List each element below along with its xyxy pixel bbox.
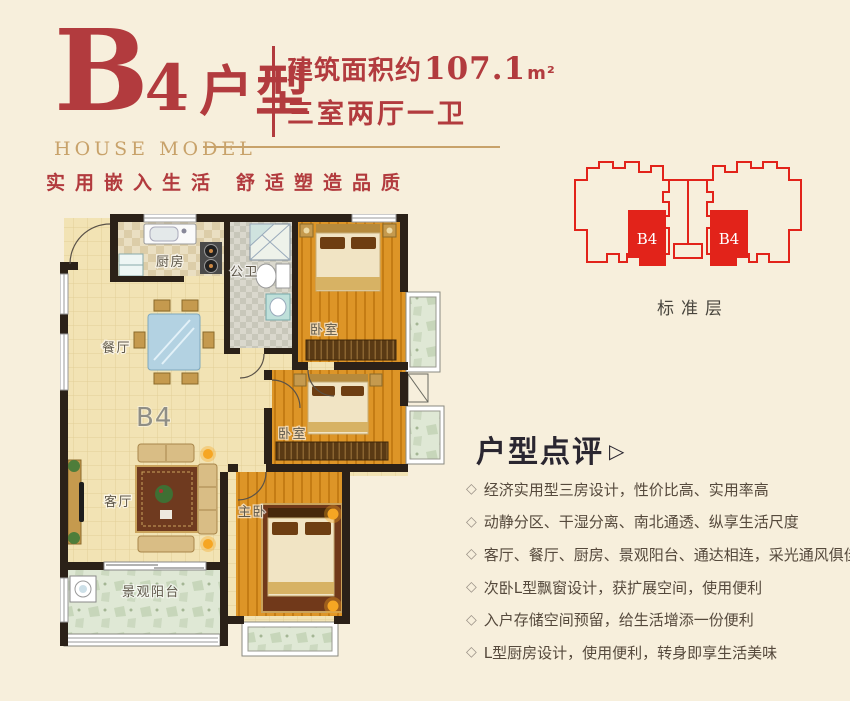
- floor-plan: 厨房 公卫 卧室 餐厅 卧室 客厅 主卧 景观阳台 B4: [60, 214, 463, 666]
- spec-block: 建筑面积约107.1m² 三室两厅一卫: [287, 50, 556, 131]
- duct-shaft: [408, 374, 428, 402]
- bay-window-bedroom2: [406, 406, 444, 464]
- review-item-text: 客厅、餐厅、厨房、景观阳台、通达相连，采光通风俱佳: [484, 544, 850, 565]
- review-item-text: L型厨房设计，使用便利，转身即享生活美味: [484, 642, 777, 663]
- review-heading-text: 户型点评: [476, 427, 604, 471]
- area-unit: m²: [527, 63, 556, 84]
- subtitle-english: HOUSE MODEL: [54, 138, 256, 160]
- title-number: 4: [145, 51, 190, 126]
- review-item-text: 动静分区、干湿分离、南北通透、纵享生活尺度: [484, 511, 799, 532]
- review-list: ◇经济实用型三房设计，性价比高、实用率高 ◇动静分区、干湿分离、南北通透、纵享生…: [466, 473, 850, 669]
- bedroom1-wardrobe: [306, 340, 396, 360]
- area-line: 建筑面积约107.1m²: [287, 50, 556, 87]
- balcony-window-band: [64, 634, 220, 646]
- site-diagram-drawing: B4 B4: [573, 158, 813, 288]
- floor-plan-drawing: 厨房 公卫 卧室 餐厅 卧室 客厅 主卧 景观阳台 B4: [60, 214, 463, 666]
- room-label-bedroom1: 卧室: [310, 322, 339, 338]
- washing-machine: [70, 576, 96, 602]
- slogan-left: 实用嵌入生活: [46, 172, 220, 194]
- review-item: ◇经济实用型三房设计，性价比高、实用率高: [466, 473, 850, 506]
- room-label-balcony: 景观阳台: [122, 585, 180, 600]
- bedroom2-wardrobe: [276, 442, 388, 460]
- diamond-bullet-icon: ◇: [466, 481, 477, 497]
- kitchen-sink: [144, 224, 196, 244]
- unit-label: B4: [136, 403, 172, 433]
- slogan: 实用嵌入生活舒适塑造品质: [46, 168, 410, 195]
- title-divider: [272, 46, 275, 137]
- fridge: [119, 254, 143, 276]
- diamond-bullet-icon: ◇: [466, 514, 477, 530]
- site-caption: 标准层: [573, 294, 813, 319]
- title-letter: B: [54, 26, 149, 118]
- review-item: ◇L型厨房设计，使用便利，转身即享生活美味: [466, 636, 850, 669]
- stove: [200, 242, 222, 274]
- slogan-right: 舒适塑造品质: [236, 172, 410, 194]
- diamond-bullet-icon: ◇: [466, 612, 477, 628]
- area-prefix: 建筑面积约: [287, 50, 422, 87]
- site-diagram: B4 B4: [573, 158, 813, 288]
- room-label-kitchen: 厨房: [156, 254, 185, 270]
- layout-line: 三室两厅一卫: [287, 92, 556, 131]
- triangle-arrow-icon: ▷: [609, 439, 626, 463]
- review-item: ◇次卧L型飘窗设计，获扩展空间，使用便利: [466, 571, 850, 604]
- room-label-living: 客厅: [104, 494, 133, 510]
- bay-window-master: [242, 622, 338, 656]
- review-item: ◇入户存储空间预留，给生活增添一份便利: [466, 603, 850, 636]
- review-item-text: 经济实用型三房设计，性价比高、实用率高: [484, 479, 769, 500]
- balcony-sliding-door: [104, 562, 206, 570]
- room-label-dining: 餐厅: [102, 340, 131, 356]
- room-label-bedroom2: 卧室: [278, 426, 307, 442]
- bath-sink: [266, 294, 290, 320]
- review-item: ◇动静分区、干湿分离、南北通透、纵享生活尺度: [466, 506, 850, 539]
- shower: [250, 224, 290, 260]
- diamond-bullet-icon: ◇: [466, 546, 477, 562]
- review-heading: 户型点评 ▷: [476, 427, 626, 471]
- unit-block-left-label: B4: [637, 230, 658, 248]
- flyer-page: B 4 户型 建筑面积约107.1m² 三室两厅一卫 HOUSE MODEL 实…: [0, 0, 850, 701]
- area-value: 107.1: [424, 51, 526, 87]
- room-label-bath: 公卫: [230, 265, 259, 280]
- review-item: ◇客厅、餐厅、厨房、景观阳台、通达相连，采光通风俱佳: [466, 538, 850, 571]
- building-outline: [575, 162, 801, 262]
- gold-divider-line: [203, 146, 500, 148]
- diamond-bullet-icon: ◇: [466, 644, 477, 660]
- diamond-bullet-icon: ◇: [466, 579, 477, 595]
- room-label-master: 主卧: [238, 505, 267, 520]
- master-bed: [262, 504, 342, 615]
- unit-block-right-label: B4: [719, 230, 740, 248]
- toilet: [256, 264, 290, 288]
- review-item-text: 入户存储空间预留，给生活增添一份便利: [484, 609, 754, 630]
- review-item-text: 次卧L型飘窗设计，获扩展空间，使用便利: [484, 577, 762, 598]
- bay-window-bedroom1: [406, 292, 440, 372]
